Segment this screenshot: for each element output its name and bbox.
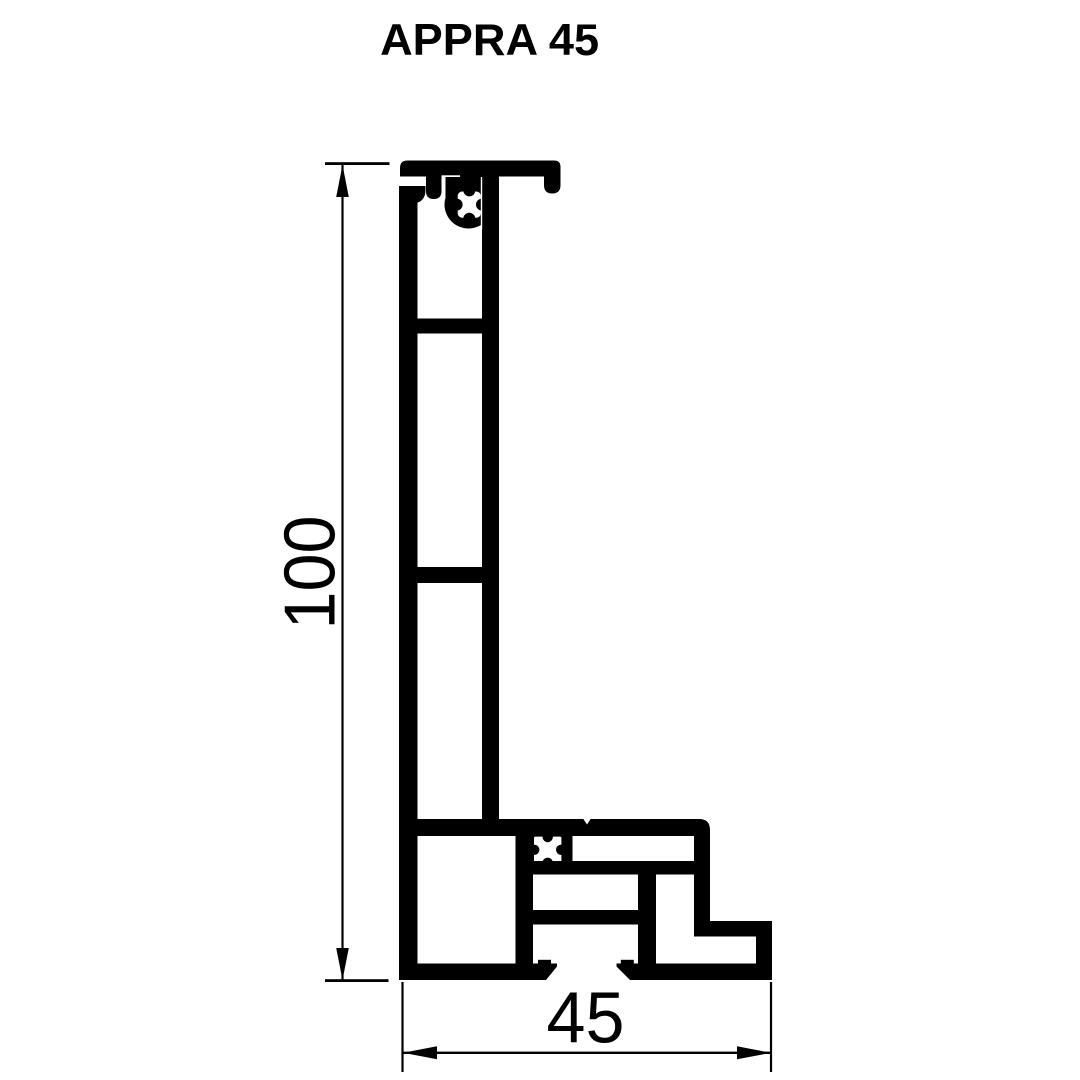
svg-text:45: 45: [547, 978, 625, 1059]
svg-text:100: 100: [270, 516, 351, 630]
svg-text:APPRA 45: APPRA 45: [380, 16, 599, 65]
